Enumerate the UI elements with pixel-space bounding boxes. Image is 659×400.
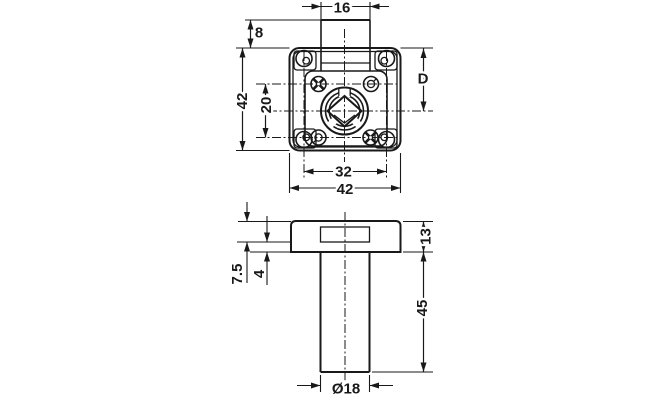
dim-label-tab-offset: 8 <box>255 25 263 42</box>
flange-outline <box>291 221 401 252</box>
dim-label-flange-thickness: 13 <box>418 228 435 245</box>
dim-label-backset: D <box>418 71 429 88</box>
dim-label-screw-spacing-horizontal: 32 <box>335 164 352 181</box>
dimension-labels: 16 8 42 20 D 32 42 7.5 4 13 45 Ø18 <box>229 0 435 398</box>
technical-drawing: 16 8 42 20 D 32 42 7.5 4 13 45 Ø18 <box>0 0 659 400</box>
dim-label-plate-height: 42 <box>234 93 251 110</box>
dim-label-cylinder-diameter: Ø18 <box>332 381 360 398</box>
drawing-canvas: 16 8 42 20 D 32 42 7.5 4 13 45 Ø18 <box>0 0 659 400</box>
dim-label-screw-spacing-vertical: 20 <box>258 97 275 114</box>
dim-label-cylinder-length: 45 <box>414 300 431 317</box>
centerlines <box>256 29 433 382</box>
dim-label-lip: 4 <box>251 269 268 278</box>
dim-label-plate-width: 42 <box>337 181 354 198</box>
extension-lines <box>236 2 433 392</box>
dim-label-tab-width: 16 <box>334 0 351 17</box>
side-view <box>291 221 401 372</box>
dim-label-case-recess: 7.5 <box>229 264 246 285</box>
